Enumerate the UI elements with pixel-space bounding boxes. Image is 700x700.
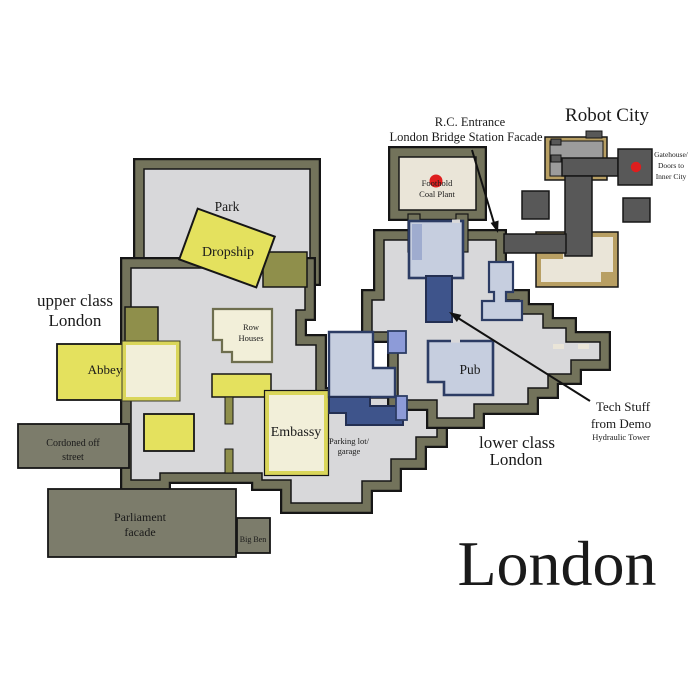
wall-door-gap-2 [578,344,589,349]
dropship-label: Dropship [202,245,254,260]
hydraulic-tower [426,276,452,322]
parking-label-1: Parking lot/ [329,436,370,446]
station-roof-block [586,131,602,138]
parking-label-2: garage [338,446,361,456]
parliament-label-1: Parliament [114,510,167,524]
corridor-to-gatehouse [562,158,618,176]
coal-plant-label-1: Foothold [422,178,453,188]
beige-room-corner [601,272,613,282]
periwinkle-building-small [396,396,407,420]
station-tab-2 [551,155,561,162]
wall-door-gap-1 [553,344,564,349]
pub-label: Pub [459,362,480,377]
big-ben-label: Big Ben [240,535,266,544]
cordoned-label-2: street [62,452,84,463]
olive-block-above-abbey [125,307,158,345]
upper-class-label-2: London [49,311,102,330]
park-label: Park [215,199,240,214]
embassy-label: Embassy [271,425,322,440]
yellow-bar-building [212,374,271,397]
factory-door-gap [452,220,460,224]
coal-plant-label-2: Coal Plant [419,189,455,199]
rc-entrance-label-2: London Bridge Station Facade [389,130,543,144]
robot-block-left [522,191,549,219]
corridor-to-london [504,234,566,253]
station-tab-1 [551,139,561,145]
parliament-label-2: facade [124,525,155,539]
robot-city-label: Robot City [565,105,649,126]
fence-strip-1 [225,397,233,424]
row-houses-label-1: Row [243,322,260,332]
pub-door-gap [451,339,460,343]
lower-class-label-2: London [490,450,543,469]
fence-strip-2 [225,449,233,473]
olive-block-near-dropship [263,252,307,287]
rc-entrance-label-1: R.C. Entrance [435,115,506,129]
upper-class-label-1: upper class [37,291,113,310]
row-houses-label-2: Houses [238,333,263,343]
london-map: Park Dropship Abbey Row Houses Embassy P… [0,0,700,700]
tech-stuff-label-1: Tech Stuff [596,399,651,414]
robot-city [504,131,652,287]
gatehouse-label-2: Doors to [658,161,684,170]
yellow-square-building [144,414,194,451]
factory-building-wing [412,224,422,260]
corridor-vertical [565,176,592,256]
robot-block-right [623,198,650,222]
map-canvas: Park Dropship Abbey Row Houses Embassy P… [0,0,700,700]
abbey-label: Abbey [88,362,123,377]
gatehouse-red-dot [631,162,641,172]
map-title: London [457,528,656,599]
hydraulic-tower-label: Hydraulic Tower [592,432,650,442]
gatehouse-label-3: Inner City [656,172,687,181]
cordoned-label-1: Cordoned off [46,438,100,449]
abbey-annex-floor [126,345,176,397]
periwinkle-building [388,331,406,353]
gatehouse-label-1: Gatehouse/ [654,150,689,159]
tech-stuff-label-2: from Demo [591,416,651,431]
